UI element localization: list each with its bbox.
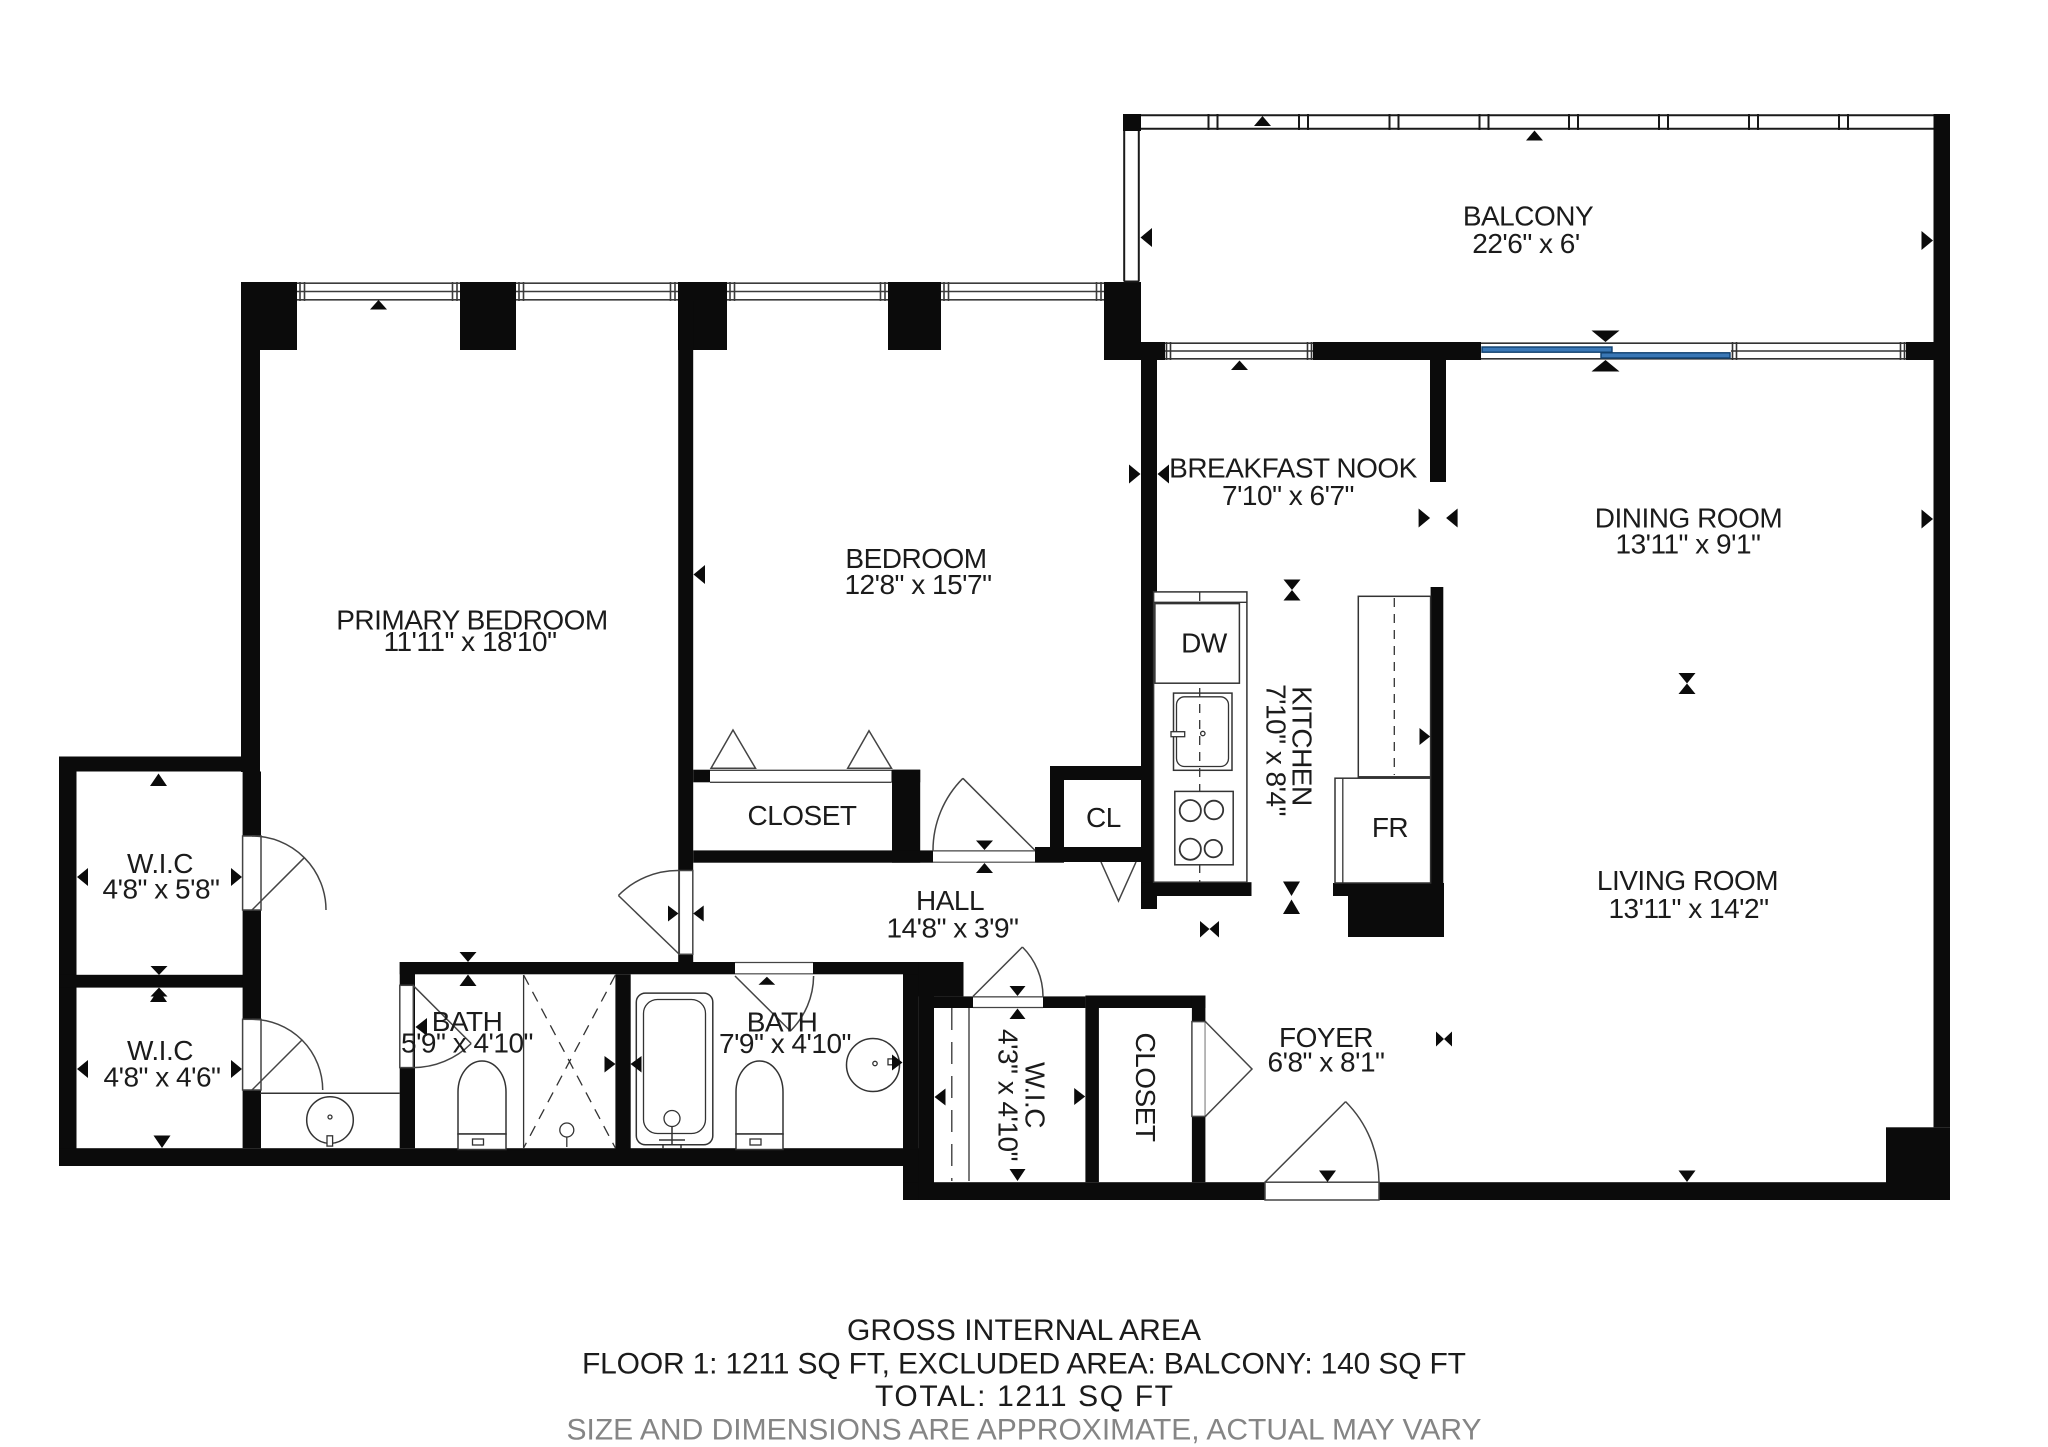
svg-text:BREAKFAST NOOK: BREAKFAST NOOK	[1169, 453, 1417, 484]
svg-text:4'3" x 4'10": 4'3" x 4'10"	[992, 1029, 1023, 1161]
svg-text:GROSS INTERNAL AREA: GROSS INTERNAL AREA	[847, 1314, 1201, 1347]
svg-text:22'6" x 6': 22'6" x 6'	[1472, 228, 1579, 259]
svg-text:SIZE AND DIMENSIONS ARE APPROX: SIZE AND DIMENSIONS ARE APPROXIMATE, ACT…	[567, 1414, 1482, 1447]
svg-text:FR: FR	[1372, 812, 1408, 843]
svg-text:7'10" x 8'4": 7'10" x 8'4"	[1261, 684, 1292, 816]
svg-text:12'8" x 15'7": 12'8" x 15'7"	[844, 569, 991, 600]
svg-text:CLOSET: CLOSET	[747, 800, 856, 831]
svg-text:14'8" x 3'9": 14'8" x 3'9"	[887, 913, 1019, 944]
svg-text:TOTAL: 1211 SQ FT: TOTAL: 1211 SQ FT	[875, 1380, 1173, 1413]
svg-text:4'8" x 5'8": 4'8" x 5'8"	[103, 874, 220, 905]
svg-text:13'11" x 14'2": 13'11" x 14'2"	[1608, 893, 1768, 924]
svg-text:11'11" x 18'10": 11'11" x 18'10"	[383, 626, 556, 657]
svg-text:13'11" x 9'1": 13'11" x 9'1"	[1616, 529, 1761, 560]
svg-text:BALCONY: BALCONY	[1463, 201, 1594, 232]
svg-text:HALL: HALL	[916, 885, 984, 916]
svg-text:FLOOR 1: 1211 SQ FT, EXCLUDED: FLOOR 1: 1211 SQ FT, EXCLUDED AREA: BALC…	[582, 1348, 1466, 1381]
svg-text:7'10" x 6'7": 7'10" x 6'7"	[1222, 480, 1354, 511]
svg-text:DW: DW	[1181, 628, 1228, 659]
svg-text:LIVING ROOM: LIVING ROOM	[1597, 865, 1778, 896]
svg-text:6'8" x 8'1": 6'8" x 8'1"	[1268, 1047, 1385, 1078]
svg-text:5'9" x 4'10": 5'9" x 4'10"	[401, 1028, 533, 1059]
svg-text:CLOSET: CLOSET	[1130, 1032, 1161, 1141]
svg-text:7'9" x 4'10": 7'9" x 4'10"	[719, 1028, 851, 1059]
svg-text:CL: CL	[1086, 802, 1121, 833]
svg-text:4'8" x 4'6": 4'8" x 4'6"	[104, 1062, 221, 1093]
